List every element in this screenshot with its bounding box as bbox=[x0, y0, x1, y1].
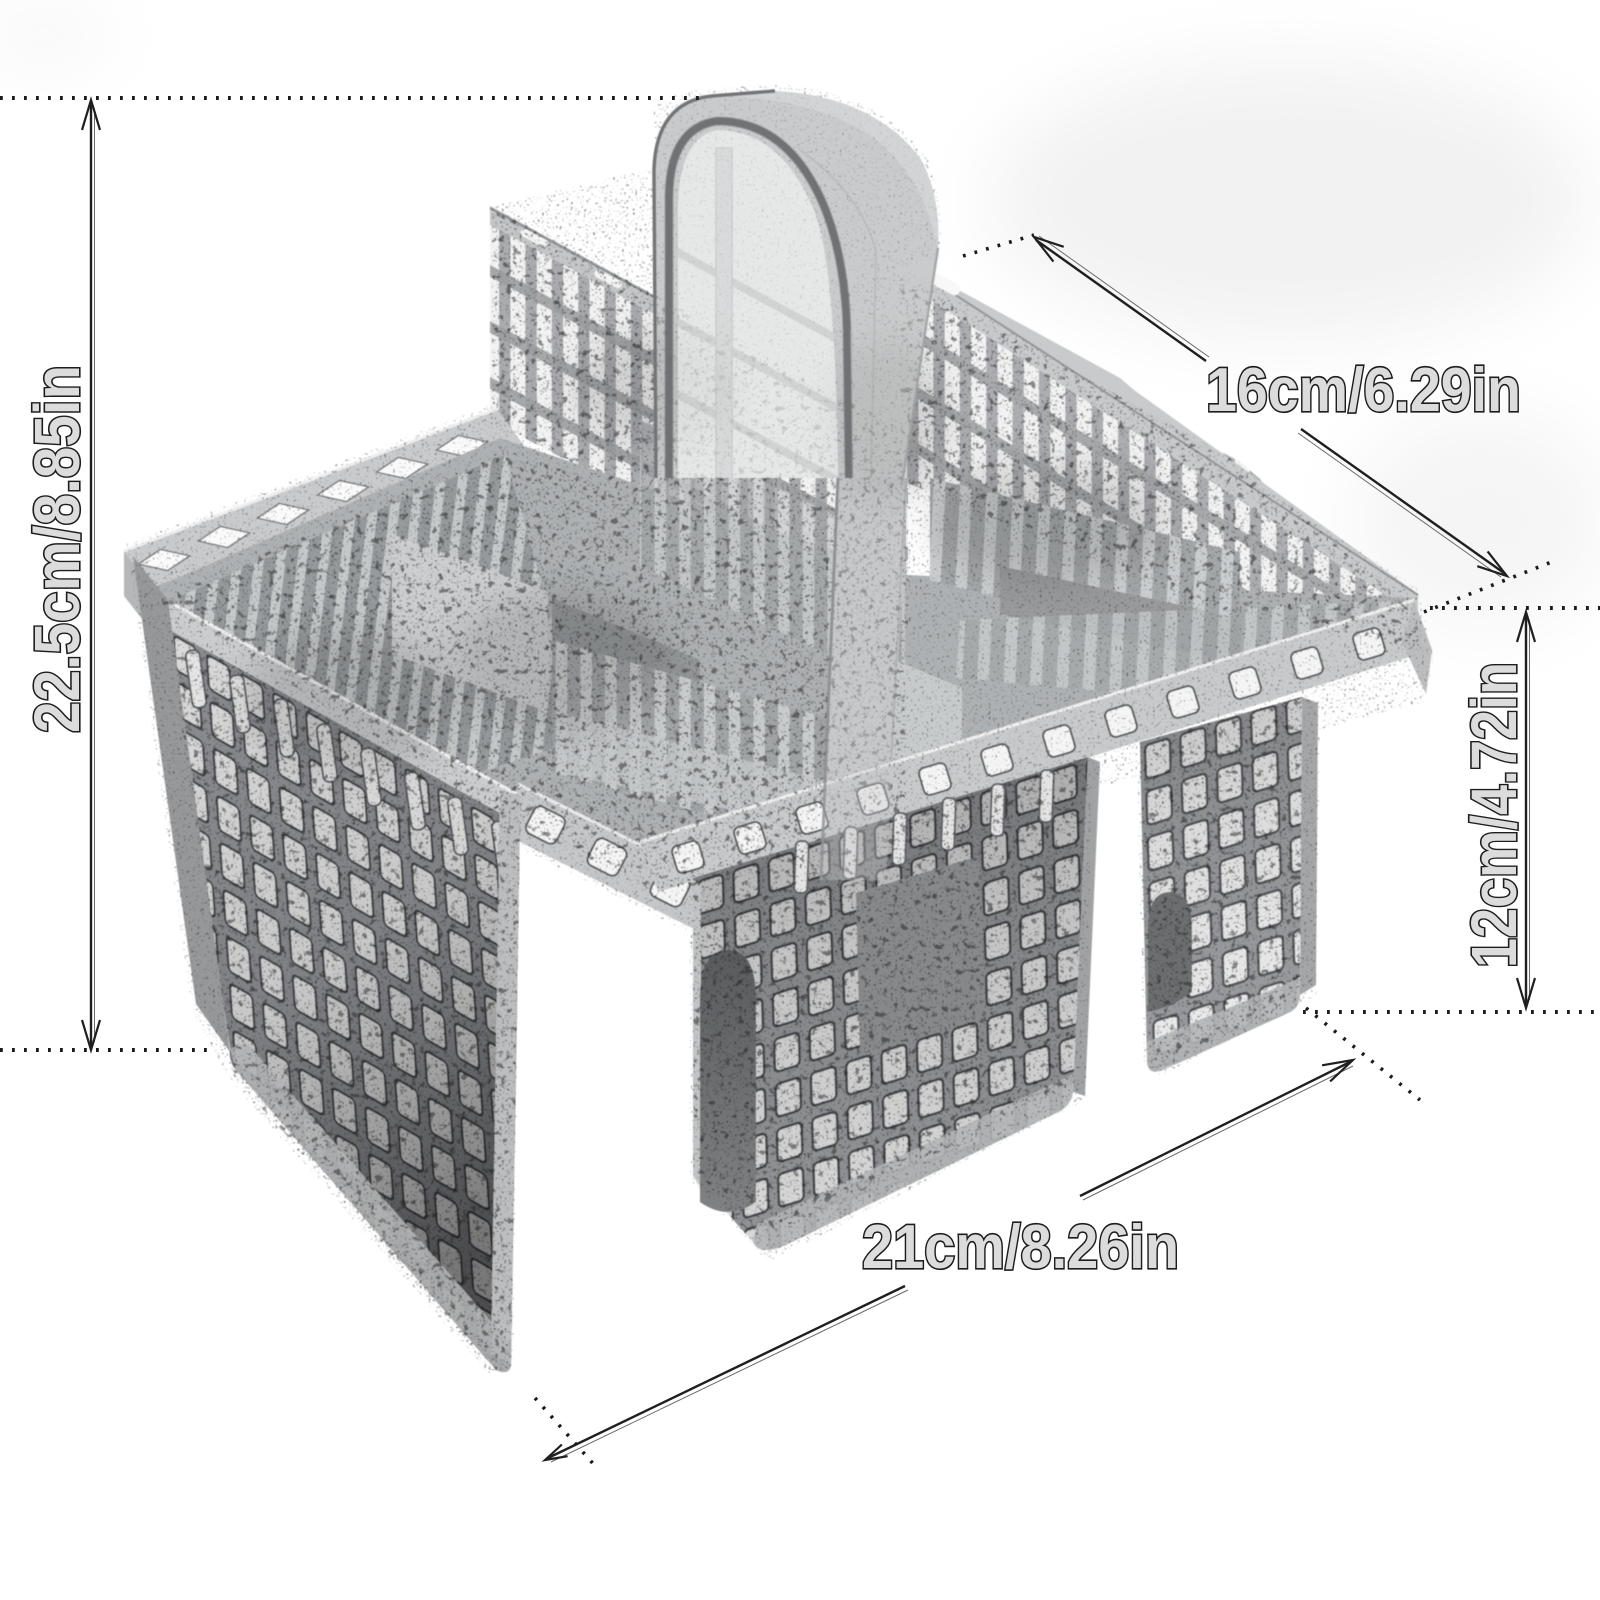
svg-text:12cm/4.72in: 12cm/4.72in bbox=[1458, 662, 1530, 968]
svg-text:21cm/8.26in: 21cm/8.26in bbox=[862, 1213, 1179, 1282]
svg-text:22.5cm/8.85in: 22.5cm/8.85in bbox=[21, 365, 93, 733]
svg-text:16cm/6.29in: 16cm/6.29in bbox=[1206, 356, 1521, 425]
